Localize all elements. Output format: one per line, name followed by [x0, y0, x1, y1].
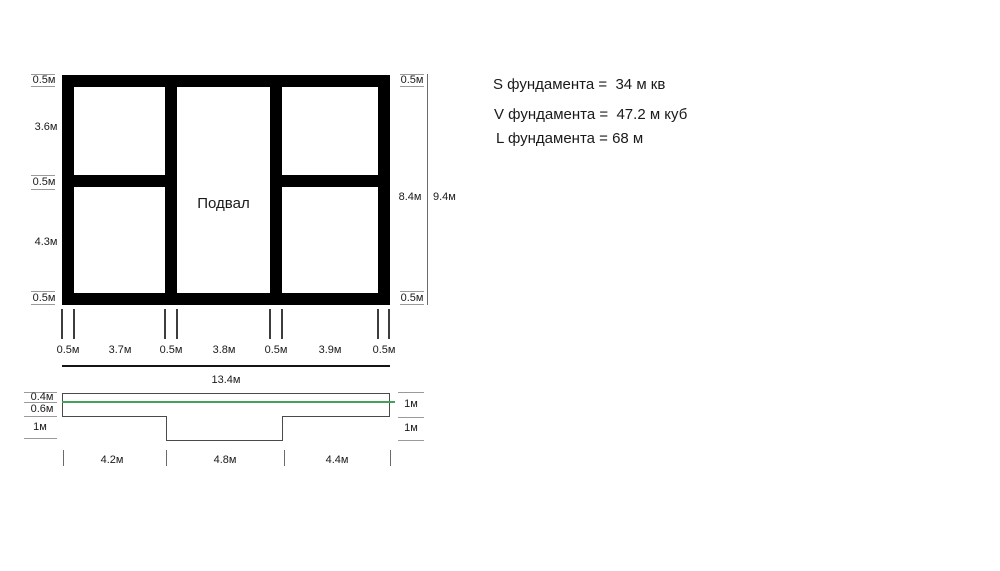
plan-left-dim-1: 3.6м — [35, 122, 58, 133]
dim-tick — [390, 450, 391, 466]
dim-line — [31, 304, 55, 305]
plan-bottom-dim-3: 3.8м — [213, 345, 236, 356]
plan-total-width: 13.4м — [212, 375, 241, 386]
plan-left-dim-4: 0.5м — [33, 293, 56, 304]
plan-right-dim-0: 0.5м — [401, 75, 424, 86]
plan-vertical-wall-1 — [165, 75, 177, 305]
dim-tick — [269, 309, 271, 339]
plan-left-dim-2: 0.5м — [33, 177, 56, 188]
dim-line — [400, 304, 424, 305]
total-width-line — [62, 365, 390, 367]
section-bottom-dim-0: 4.2м — [101, 455, 124, 466]
section-right-dim-1: 1м — [404, 423, 418, 434]
dim-tick — [176, 309, 178, 339]
dim-tick — [73, 309, 75, 339]
plan-horizontal-wall-right — [270, 175, 390, 187]
dim-line — [398, 440, 424, 441]
dim-line — [31, 86, 55, 87]
dim-line — [31, 189, 55, 190]
plan-left-dim-3: 4.3м — [35, 237, 58, 248]
plan-bottom-dim-4: 0.5м — [265, 345, 288, 356]
length-formula: L фундамента = 68 м — [496, 131, 643, 147]
plan-bottom-dim-5: 3.9м — [319, 345, 342, 356]
section-left-dim-2: 1м — [33, 422, 47, 433]
plan-bottom-dim-1: 3.7м — [109, 345, 132, 356]
plan-bottom-dim-0: 0.5м — [57, 345, 80, 356]
plan-left-dim-0: 0.5м — [33, 75, 56, 86]
section-bottom-dim-2: 4.4м — [326, 455, 349, 466]
section-slab-outline — [62, 393, 390, 417]
volume-formula: V фундамента = 47.2 м куб — [494, 107, 687, 123]
dim-line — [24, 438, 57, 439]
plan-right-dim-3: 0.5м — [401, 293, 424, 304]
basement-label: Подвал — [177, 196, 270, 212]
dim-line — [398, 417, 424, 418]
ground-level-line — [62, 401, 395, 403]
dim-tick — [281, 309, 283, 339]
section-bottom-dim-1: 4.8м — [214, 455, 237, 466]
dim-tick — [63, 450, 64, 466]
area-formula: S фундамента = 34 м кв — [493, 77, 665, 93]
plan-bottom-dim-6: 0.5м — [373, 345, 396, 356]
foundation-plan-diagram: Подвал 0.5м 3.6м 0.5м 4.3м 0.5м 0.5м 8.4… — [0, 0, 1000, 571]
total-height-line — [427, 74, 428, 305]
plan-bottom-dim-2: 0.5м — [160, 345, 183, 356]
dim-tick — [166, 450, 167, 466]
plan-outer-wall — [62, 75, 390, 305]
dim-tick — [164, 309, 166, 339]
dim-tick — [377, 309, 379, 339]
dim-tick — [388, 309, 390, 339]
plan-right-dim-inner-height: 8.4м — [399, 192, 422, 203]
plan-right-dim-total-height: 9.4м — [433, 192, 456, 203]
section-right-dim-0: 1м — [404, 399, 418, 410]
dim-line — [400, 86, 424, 87]
section-left-dim-1: 0.6м — [31, 404, 54, 415]
dim-line — [24, 416, 57, 417]
dim-tick — [61, 309, 63, 339]
plan-horizontal-wall-left — [62, 175, 177, 187]
dim-tick — [284, 450, 285, 466]
dim-line — [398, 392, 424, 393]
plan-vertical-wall-2 — [270, 75, 282, 305]
section-footing-notch — [166, 416, 283, 441]
